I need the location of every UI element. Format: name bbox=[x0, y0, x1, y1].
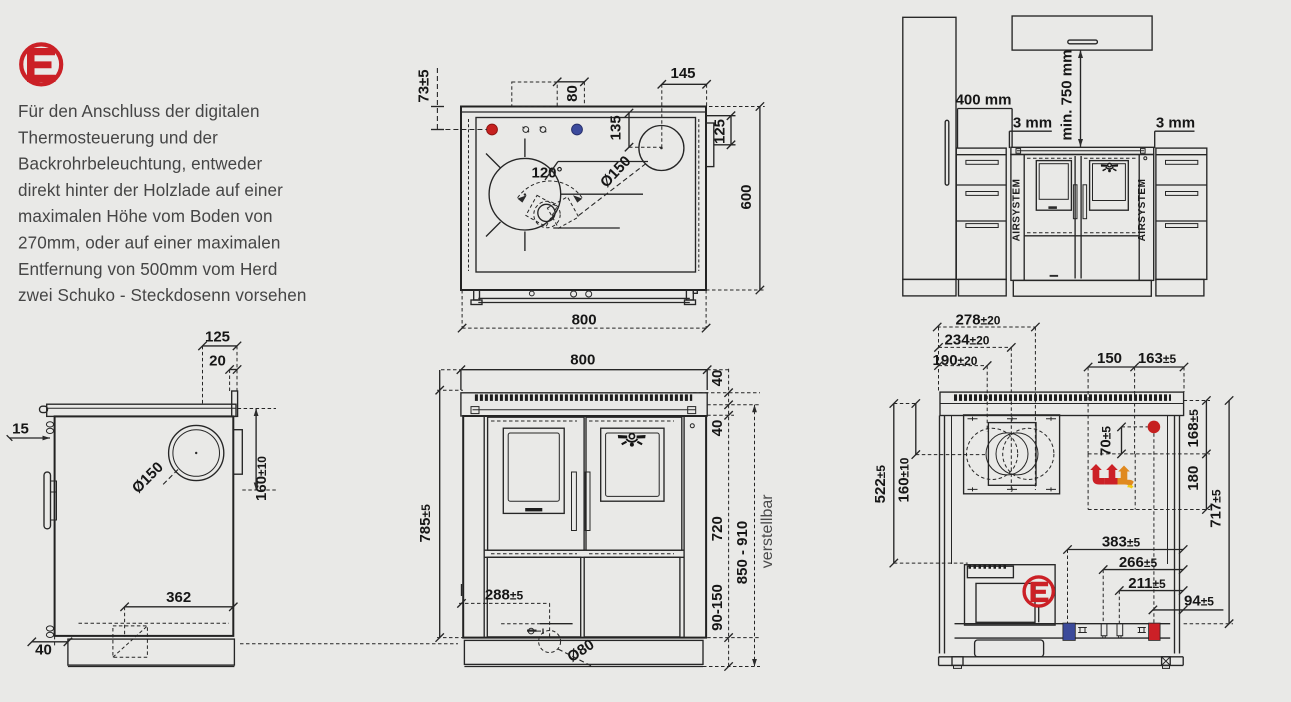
svg-text:40: 40 bbox=[709, 420, 726, 437]
svg-text:600: 600 bbox=[738, 184, 755, 209]
svg-text:168±5: 168±5 bbox=[1185, 409, 1202, 448]
svg-text:270mm, oder auf einer maximale: 270mm, oder auf einer maximalen bbox=[18, 234, 280, 253]
svg-text:288±5: 288±5 bbox=[485, 587, 524, 604]
svg-text:785±5: 785±5 bbox=[417, 504, 434, 543]
svg-text:150: 150 bbox=[1097, 350, 1122, 367]
svg-text:180: 180 bbox=[1185, 466, 1202, 491]
svg-text:80: 80 bbox=[564, 85, 581, 102]
svg-text:verstellbar: verstellbar bbox=[759, 494, 776, 568]
svg-text:234±20: 234±20 bbox=[945, 332, 990, 349]
svg-text:73±5: 73±5 bbox=[416, 69, 433, 102]
svg-text:3 mm: 3 mm bbox=[1156, 114, 1195, 131]
svg-text:362: 362 bbox=[166, 589, 191, 606]
svg-text:70±5: 70±5 bbox=[1098, 426, 1115, 456]
svg-text:40: 40 bbox=[709, 370, 726, 387]
svg-text:190±20: 190±20 bbox=[933, 352, 978, 369]
svg-text:Für den Anschluss der digitale: Für den Anschluss der digitalen bbox=[18, 102, 260, 121]
svg-text:min. 750 mm: min. 750 mm bbox=[1059, 50, 1076, 141]
svg-text:120°: 120° bbox=[531, 165, 562, 182]
svg-text:720: 720 bbox=[709, 516, 726, 541]
svg-text:15: 15 bbox=[12, 421, 29, 438]
svg-text:383±5: 383±5 bbox=[1102, 534, 1141, 551]
svg-text:Thermosteuerung und der: Thermosteuerung und der bbox=[18, 128, 218, 147]
svg-text:125: 125 bbox=[205, 329, 230, 346]
svg-text:522±5: 522±5 bbox=[872, 465, 889, 504]
svg-text:800: 800 bbox=[572, 312, 597, 329]
svg-text:Backrohrbeleuchtung, entweder: Backrohrbeleuchtung, entweder bbox=[18, 155, 262, 174]
svg-text:94±5: 94±5 bbox=[1184, 592, 1214, 609]
svg-text:AIRSYSTEM: AIRSYSTEM bbox=[1137, 179, 1148, 242]
svg-text:163±5: 163±5 bbox=[1138, 350, 1177, 367]
svg-text:800: 800 bbox=[570, 352, 595, 369]
svg-text:maximalen Höhe vom Boden von: maximalen Höhe vom Boden von bbox=[18, 207, 273, 226]
svg-text:20: 20 bbox=[209, 352, 226, 369]
svg-text:850 - 910: 850 - 910 bbox=[734, 521, 751, 584]
svg-text:400 mm: 400 mm bbox=[956, 92, 1012, 109]
svg-text:125: 125 bbox=[712, 119, 729, 144]
svg-text:AIRSYSTEM: AIRSYSTEM bbox=[1012, 179, 1023, 242]
svg-text:278±20: 278±20 bbox=[956, 311, 1001, 328]
svg-text:direkt hinter der Holzlade auf: direkt hinter der Holzlade auf einer bbox=[18, 181, 283, 200]
svg-text:266±5: 266±5 bbox=[1119, 554, 1158, 571]
svg-text:40: 40 bbox=[35, 642, 52, 659]
svg-text:160±10: 160±10 bbox=[896, 457, 913, 502]
svg-text:90-150: 90-150 bbox=[709, 584, 726, 631]
svg-text:135: 135 bbox=[608, 115, 625, 140]
svg-text:Entfernung von 500mm vom Herd: Entfernung von 500mm vom Herd bbox=[18, 260, 277, 279]
svg-text:717±5: 717±5 bbox=[1208, 489, 1225, 528]
svg-text:zwei Schuko - Steckdosenn vors: zwei Schuko - Steckdosenn vorsehen bbox=[18, 286, 306, 305]
svg-text:211±5: 211±5 bbox=[1128, 575, 1166, 592]
svg-text:3 mm: 3 mm bbox=[1013, 114, 1052, 131]
svg-text:145: 145 bbox=[670, 65, 695, 82]
